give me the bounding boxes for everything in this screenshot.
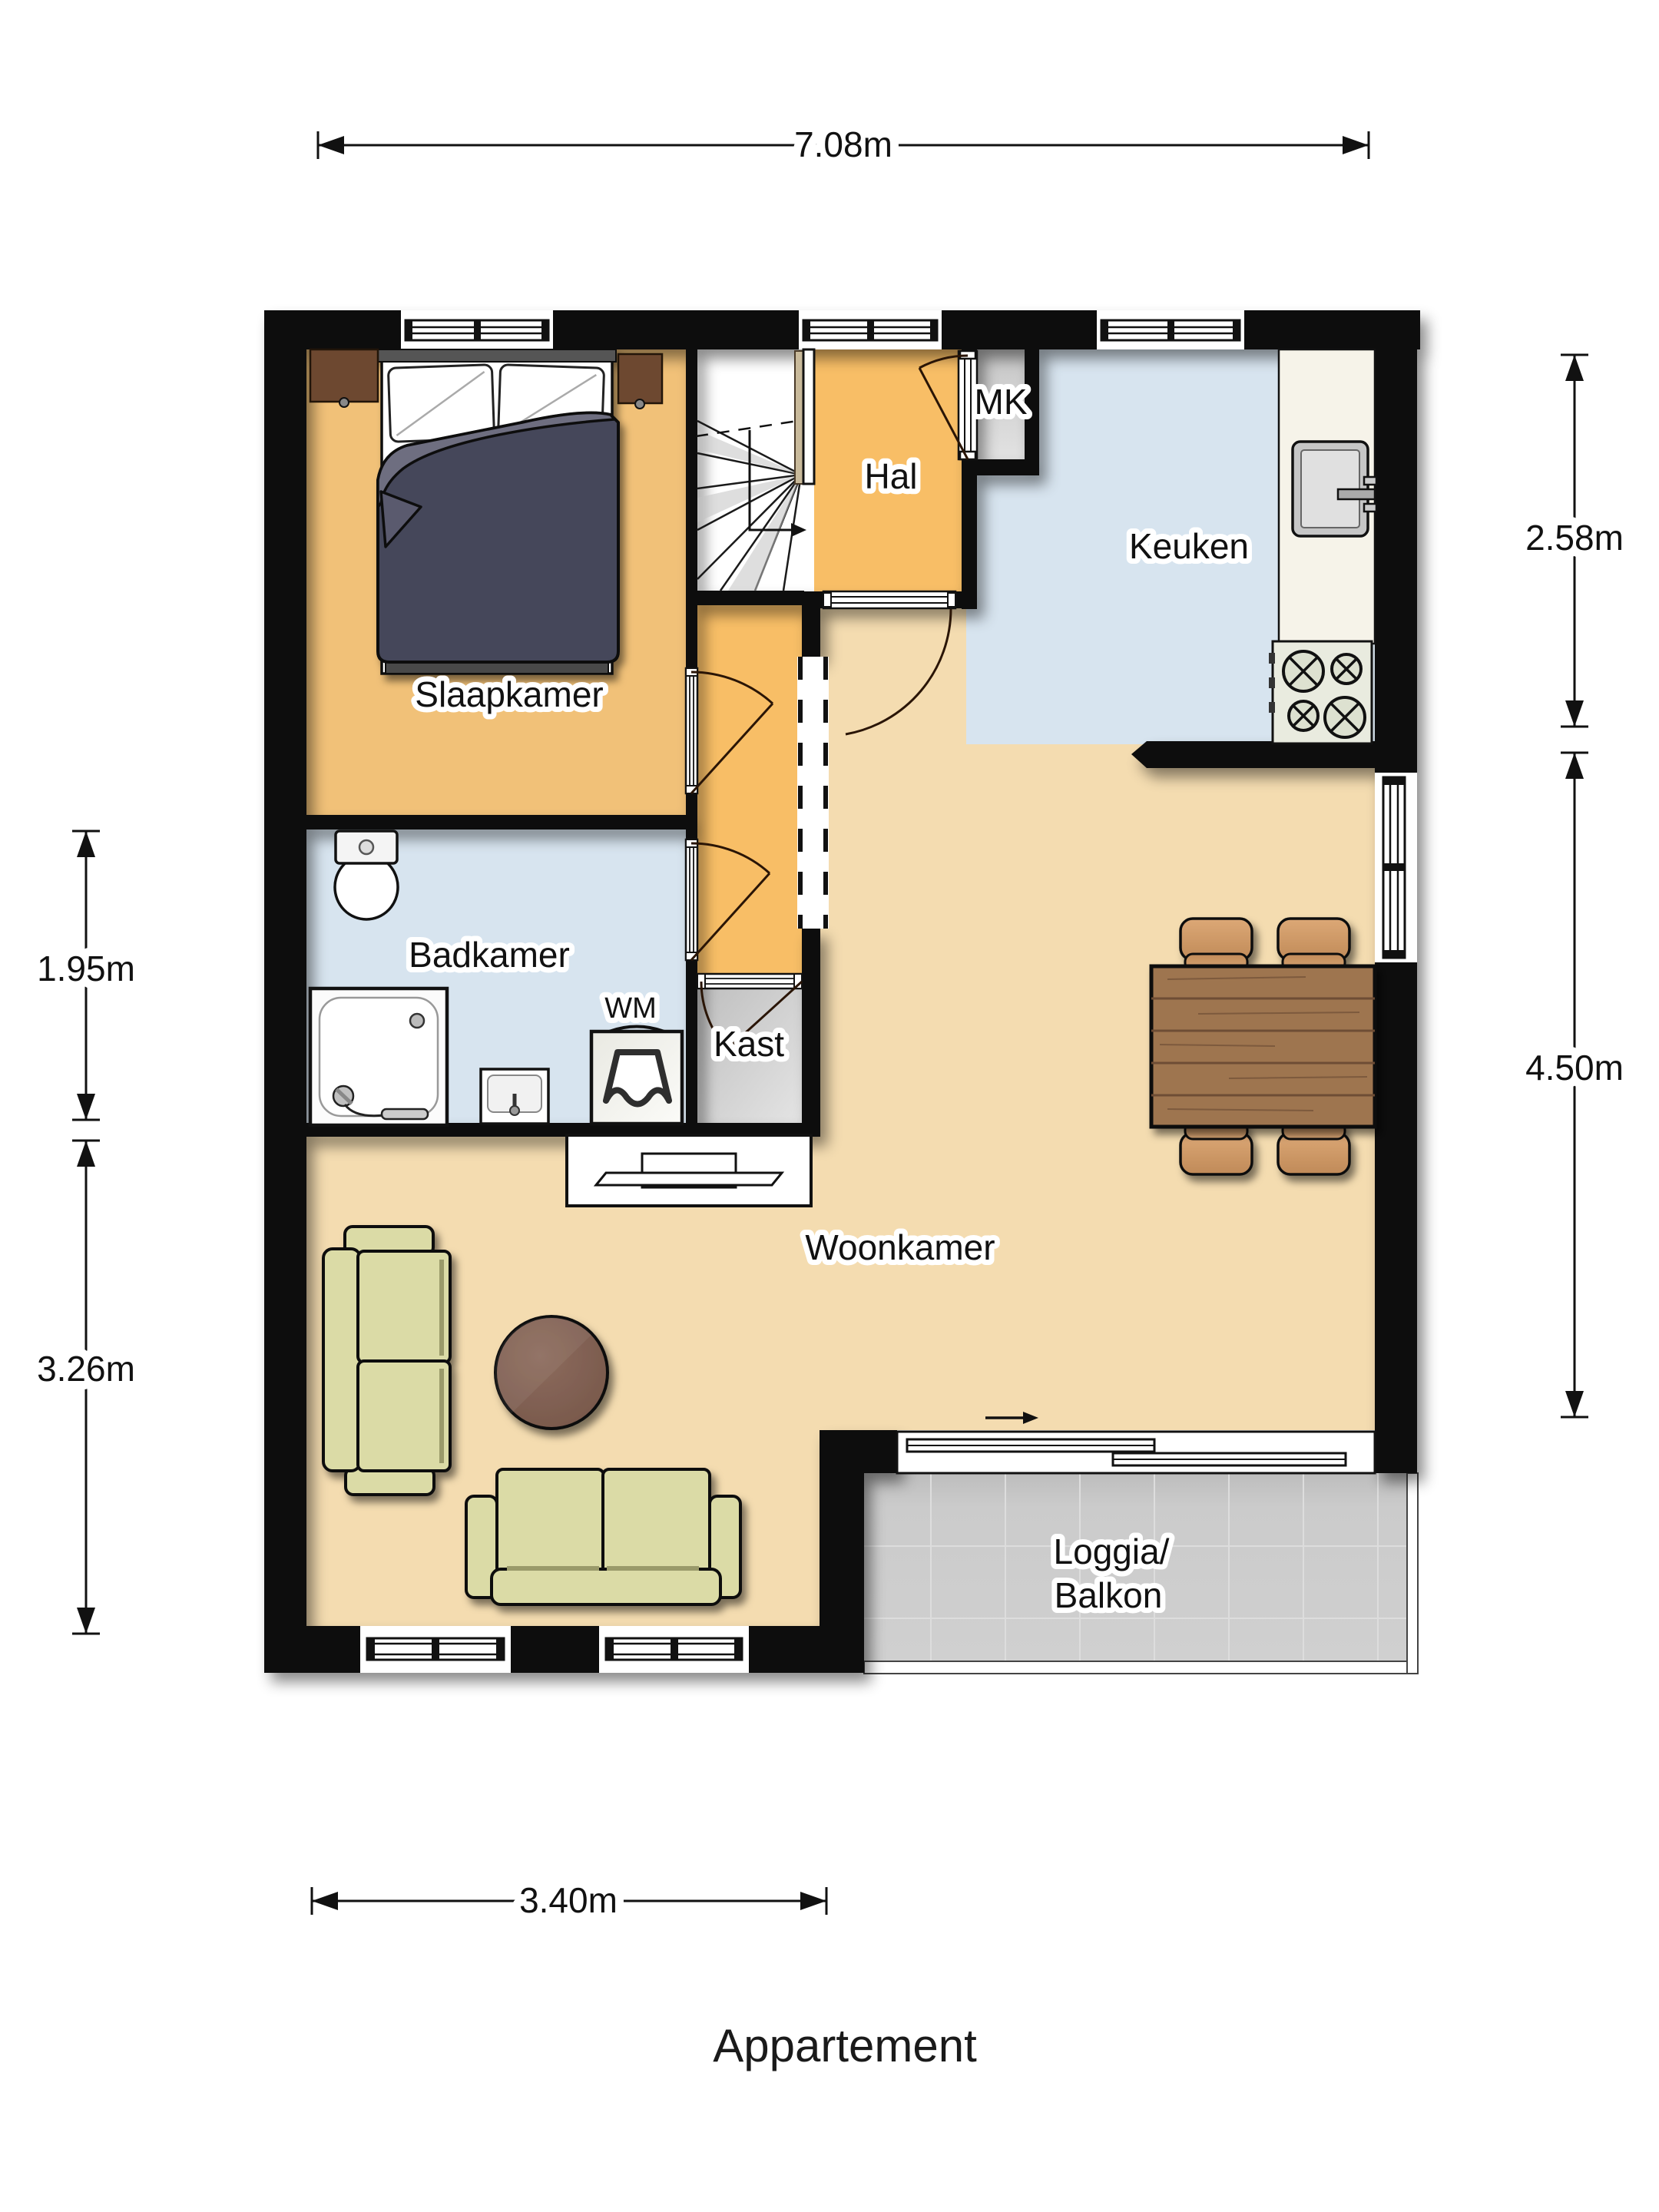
svg-text:Appartement: Appartement <box>713 2020 977 2071</box>
svg-text:3.26m: 3.26m <box>37 1349 135 1389</box>
svg-text:Loggia/: Loggia/ <box>1054 1532 1170 1571</box>
svg-text:2.58m: 2.58m <box>1525 518 1624 558</box>
svg-text:7.08m: 7.08m <box>794 124 892 164</box>
svg-text:WM: WM <box>604 992 657 1025</box>
svg-text:Balkon: Balkon <box>1055 1575 1163 1615</box>
svg-text:4.50m: 4.50m <box>1525 1048 1624 1088</box>
svg-text:Hal: Hal <box>864 456 917 496</box>
svg-text:1.95m: 1.95m <box>37 949 135 988</box>
svg-text:Keuken: Keuken <box>1129 526 1249 566</box>
svg-text:Badkamer: Badkamer <box>409 935 570 975</box>
svg-text:MK: MK <box>975 382 1028 422</box>
svg-text:3.40m: 3.40m <box>519 1880 618 1920</box>
svg-text:Slaapkamer: Slaapkamer <box>415 674 603 714</box>
svg-text:Kast: Kast <box>714 1024 784 1064</box>
svg-text:Woonkamer: Woonkamer <box>805 1227 995 1267</box>
